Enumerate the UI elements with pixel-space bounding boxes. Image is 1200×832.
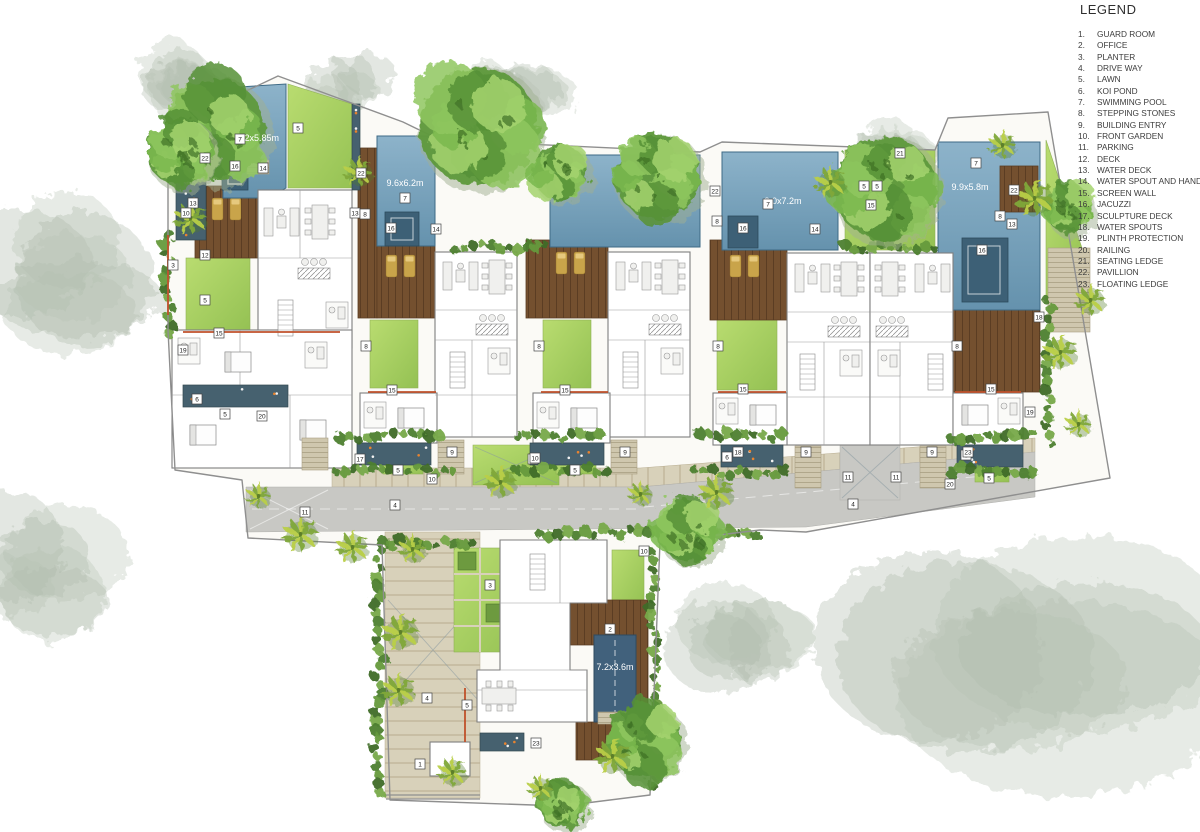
legend-item: 10.FRONT GARDEN: [1078, 131, 1200, 142]
svg-text:7: 7: [403, 196, 407, 203]
svg-text:8: 8: [716, 344, 720, 351]
svg-text:8: 8: [998, 214, 1002, 221]
plan-marker: 18: [733, 447, 743, 457]
svg-text:2: 2: [608, 627, 612, 634]
deck: [710, 240, 787, 320]
plan-marker: 9: [620, 447, 630, 457]
svg-text:9: 9: [623, 450, 627, 457]
site-plan-page: 7.2x5.85m9.6x6.2m9.0x7.2m9.9x5.8m7.2x3.6…: [0, 0, 1200, 832]
svg-text:16: 16: [387, 226, 395, 233]
plan-marker: 7: [235, 134, 245, 144]
legend-item: 19.PLINTH PROTECTION: [1078, 233, 1200, 244]
plan-marker: 15: [387, 385, 397, 395]
plan-marker: 3: [168, 260, 178, 270]
plan-marker: 10: [530, 453, 540, 463]
svg-text:14: 14: [811, 227, 819, 234]
svg-text:8: 8: [955, 344, 959, 351]
plan-marker: 8: [952, 341, 962, 351]
legend-list: 1.GUARD ROOM2.OFFICE3.PLANTER4.DRIVE WAY…: [1078, 29, 1200, 290]
svg-text:3: 3: [488, 583, 492, 590]
svg-text:9: 9: [930, 450, 934, 457]
plan-marker: 3: [485, 580, 495, 590]
plan-marker: 4: [422, 693, 432, 703]
plan-marker: 5: [220, 409, 230, 419]
legend-title: LEGEND: [1080, 2, 1200, 17]
legend-item: 17.SCULPTURE DECK: [1078, 211, 1200, 222]
plan-marker: 20: [945, 479, 955, 489]
plan-marker: 16: [386, 223, 396, 233]
legend-item: 23.FLOATING LEDGE: [1078, 279, 1200, 290]
plan-marker: 12: [200, 250, 210, 260]
plan-marker: 4: [390, 500, 400, 510]
svg-text:7: 7: [238, 137, 242, 144]
legend-item: 8.STEPPING STONES: [1078, 108, 1200, 119]
svg-text:4: 4: [393, 503, 397, 510]
plan-marker: 8: [534, 341, 544, 351]
legend-item: 9.BUILDING ENTRY: [1078, 120, 1200, 131]
svg-text:5: 5: [223, 412, 227, 419]
svg-text:11: 11: [302, 510, 309, 517]
plan-marker: 5: [462, 700, 472, 710]
legend-item: 7.SWIMMING POOL: [1078, 97, 1200, 108]
legend-item: 13.WATER DECK: [1078, 165, 1200, 176]
legend-item: 6.KOI POND: [1078, 86, 1200, 97]
plan-marker: 15: [866, 200, 876, 210]
plan-marker: 19: [178, 345, 188, 355]
svg-text:22: 22: [201, 156, 209, 163]
svg-text:13: 13: [189, 201, 197, 208]
plan-marker: 15: [560, 385, 570, 395]
svg-text:5: 5: [862, 184, 866, 191]
plan-marker: 23: [963, 447, 973, 457]
svg-text:22: 22: [357, 171, 365, 178]
svg-text:10: 10: [182, 211, 190, 218]
legend-item: 3.PLANTER: [1078, 52, 1200, 63]
plan-marker: 14: [258, 163, 268, 173]
koi-pond: [480, 733, 524, 751]
plan-marker: 11: [891, 472, 901, 482]
svg-text:14: 14: [432, 227, 440, 234]
svg-text:13: 13: [351, 211, 359, 218]
plan-marker: 17: [355, 454, 365, 464]
legend-item: 21.SEATING LEDGE: [1078, 256, 1200, 267]
svg-text:15: 15: [867, 203, 875, 210]
watercolor-tree: [0, 191, 163, 354]
svg-text:23: 23: [532, 741, 540, 748]
plan-marker: 5: [393, 465, 403, 475]
plan-marker: 1: [415, 759, 425, 769]
svg-text:4: 4: [425, 696, 429, 703]
plan-marker: 5: [200, 295, 210, 305]
svg-text:22: 22: [711, 189, 719, 196]
plan-marker: 6: [192, 394, 202, 404]
svg-text:15: 15: [561, 388, 569, 395]
svg-text:3: 3: [171, 263, 175, 270]
svg-text:18: 18: [734, 450, 742, 457]
plan-marker: 8: [713, 341, 723, 351]
svg-text:5: 5: [296, 126, 300, 133]
legend-item: 2.OFFICE: [1078, 40, 1200, 51]
plan-marker: 22: [356, 168, 366, 178]
plan-marker: 10: [639, 546, 649, 556]
svg-text:6: 6: [195, 397, 199, 404]
plan-marker: 11: [300, 507, 310, 517]
svg-text:22: 22: [1010, 188, 1018, 195]
svg-text:17: 17: [356, 457, 364, 464]
plan-marker: 5: [293, 123, 303, 133]
plan-marker: 7: [400, 193, 410, 203]
legend-item: 15.SCREEN WALL: [1078, 188, 1200, 199]
svg-text:5: 5: [203, 298, 207, 305]
courtyard-lawn: [370, 320, 418, 388]
pool-dimension-label: 7.2x3.6m: [596, 662, 633, 672]
svg-text:1: 1: [418, 762, 422, 769]
svg-text:8: 8: [537, 344, 541, 351]
svg-text:5: 5: [396, 468, 400, 475]
svg-text:15: 15: [987, 387, 995, 394]
svg-text:10: 10: [531, 456, 539, 463]
svg-text:5: 5: [987, 476, 991, 483]
svg-text:23: 23: [964, 450, 972, 457]
site-plan-drawing: 7.2x5.85m9.6x6.2m9.0x7.2m9.9x5.8m7.2x3.6…: [0, 0, 1200, 832]
legend-item: 14.WATER SPOUT AND HAND RAIL: [1078, 176, 1200, 187]
plan-marker: 5: [872, 181, 882, 191]
svg-text:15: 15: [388, 388, 396, 395]
svg-text:4: 4: [851, 502, 855, 509]
pool-dimension-label: 9.9x5.8m: [951, 182, 988, 192]
plan-marker: 15: [738, 384, 748, 394]
svg-text:19: 19: [179, 348, 187, 355]
plan-marker: 16: [738, 223, 748, 233]
svg-text:13: 13: [1008, 222, 1016, 229]
plan-marker: 9: [447, 447, 457, 457]
svg-text:9: 9: [804, 450, 808, 457]
courtyard-lawn: [186, 258, 250, 332]
svg-text:5: 5: [875, 184, 879, 191]
legend-item: 12.DECK: [1078, 154, 1200, 165]
plan-marker: 9: [927, 447, 937, 457]
plan-marker: 2: [605, 624, 615, 634]
plan-marker: 22: [200, 153, 210, 163]
svg-text:8: 8: [715, 219, 719, 226]
plan-marker: 8: [712, 216, 722, 226]
plan-marker: 8: [360, 209, 370, 219]
plan-marker: 22: [1009, 185, 1019, 195]
legend-item: 5.LAWN: [1078, 74, 1200, 85]
pool-dimension-label: 9.6x6.2m: [386, 178, 423, 188]
plan-marker: 21: [895, 148, 905, 158]
legend-item: 18.WATER SPOUTS: [1078, 222, 1200, 233]
plan-marker: 19: [1025, 407, 1035, 417]
plan-marker: 15: [986, 384, 996, 394]
svg-text:7: 7: [766, 202, 770, 209]
svg-text:5: 5: [465, 703, 469, 710]
plan-marker: 7: [763, 199, 773, 209]
plan-marker: 7: [971, 158, 981, 168]
svg-text:10: 10: [640, 549, 648, 556]
plan-marker: 6: [722, 452, 732, 462]
lounge-chair: [212, 198, 223, 220]
legend-panel: LEGEND 1.GUARD ROOM2.OFFICE3.PLANTER4.DR…: [1078, 2, 1200, 290]
plan-marker: 16: [977, 245, 987, 255]
courtyard-lawn: [717, 318, 777, 390]
legend-item: 4.DRIVE WAY: [1078, 63, 1200, 74]
svg-text:14: 14: [259, 166, 267, 173]
plan-marker: 8: [361, 341, 371, 351]
svg-text:7: 7: [974, 161, 978, 168]
plan-marker: 14: [810, 224, 820, 234]
koi-pond: [357, 443, 431, 465]
legend-item: 1.GUARD ROOM: [1078, 29, 1200, 40]
courtyard-lawn: [543, 320, 591, 388]
entry-side-lawn: [612, 550, 644, 608]
watercolor-tree: [815, 536, 1200, 797]
svg-text:15: 15: [215, 331, 223, 338]
legend-item: 20.RAILING: [1078, 245, 1200, 256]
svg-text:16: 16: [739, 226, 747, 233]
svg-text:10: 10: [428, 477, 436, 484]
plan-marker: 23: [531, 738, 541, 748]
svg-text:19: 19: [1026, 410, 1034, 417]
watercolor-tree: [664, 582, 816, 694]
plan-marker: 4: [848, 499, 858, 509]
svg-text:6: 6: [725, 455, 729, 462]
plan-marker: 13: [188, 198, 198, 208]
svg-text:21: 21: [896, 151, 904, 158]
legend-item: 16.JACUZZI: [1078, 199, 1200, 210]
plan-marker: 13: [1007, 219, 1017, 229]
plan-marker: 18: [1034, 312, 1044, 322]
plan-marker: 9: [801, 447, 811, 457]
plan-marker: 20: [257, 411, 267, 421]
plan-marker: 16: [230, 161, 240, 171]
svg-text:8: 8: [364, 344, 368, 351]
svg-text:20: 20: [258, 414, 266, 421]
svg-text:18: 18: [1035, 315, 1043, 322]
svg-text:20: 20: [946, 482, 954, 489]
svg-text:12: 12: [201, 253, 209, 260]
plan-marker: 5: [570, 465, 580, 475]
plan-marker: 10: [181, 208, 191, 218]
plan-marker: 22: [710, 186, 720, 196]
plan-marker: 14: [431, 224, 441, 234]
svg-text:9: 9: [450, 450, 454, 457]
legend-item: 11.PARKING: [1078, 142, 1200, 153]
svg-text:5: 5: [573, 468, 577, 475]
plan-marker: 15: [214, 328, 224, 338]
legend-item: 22.PAVILLION: [1078, 267, 1200, 278]
plan-marker: 13: [350, 208, 360, 218]
svg-text:11: 11: [893, 475, 900, 482]
svg-text:15: 15: [739, 387, 747, 394]
svg-text:8: 8: [363, 212, 367, 219]
plan-marker: 5: [859, 181, 869, 191]
svg-text:11: 11: [845, 475, 852, 482]
svg-text:16: 16: [978, 248, 986, 255]
watercolor-tree: [0, 491, 128, 641]
svg-text:16: 16: [231, 164, 239, 171]
plan-marker: 11: [843, 472, 853, 482]
plan-marker: 8: [995, 211, 1005, 221]
plan-marker: 5: [984, 473, 994, 483]
plan-marker: 10: [427, 474, 437, 484]
